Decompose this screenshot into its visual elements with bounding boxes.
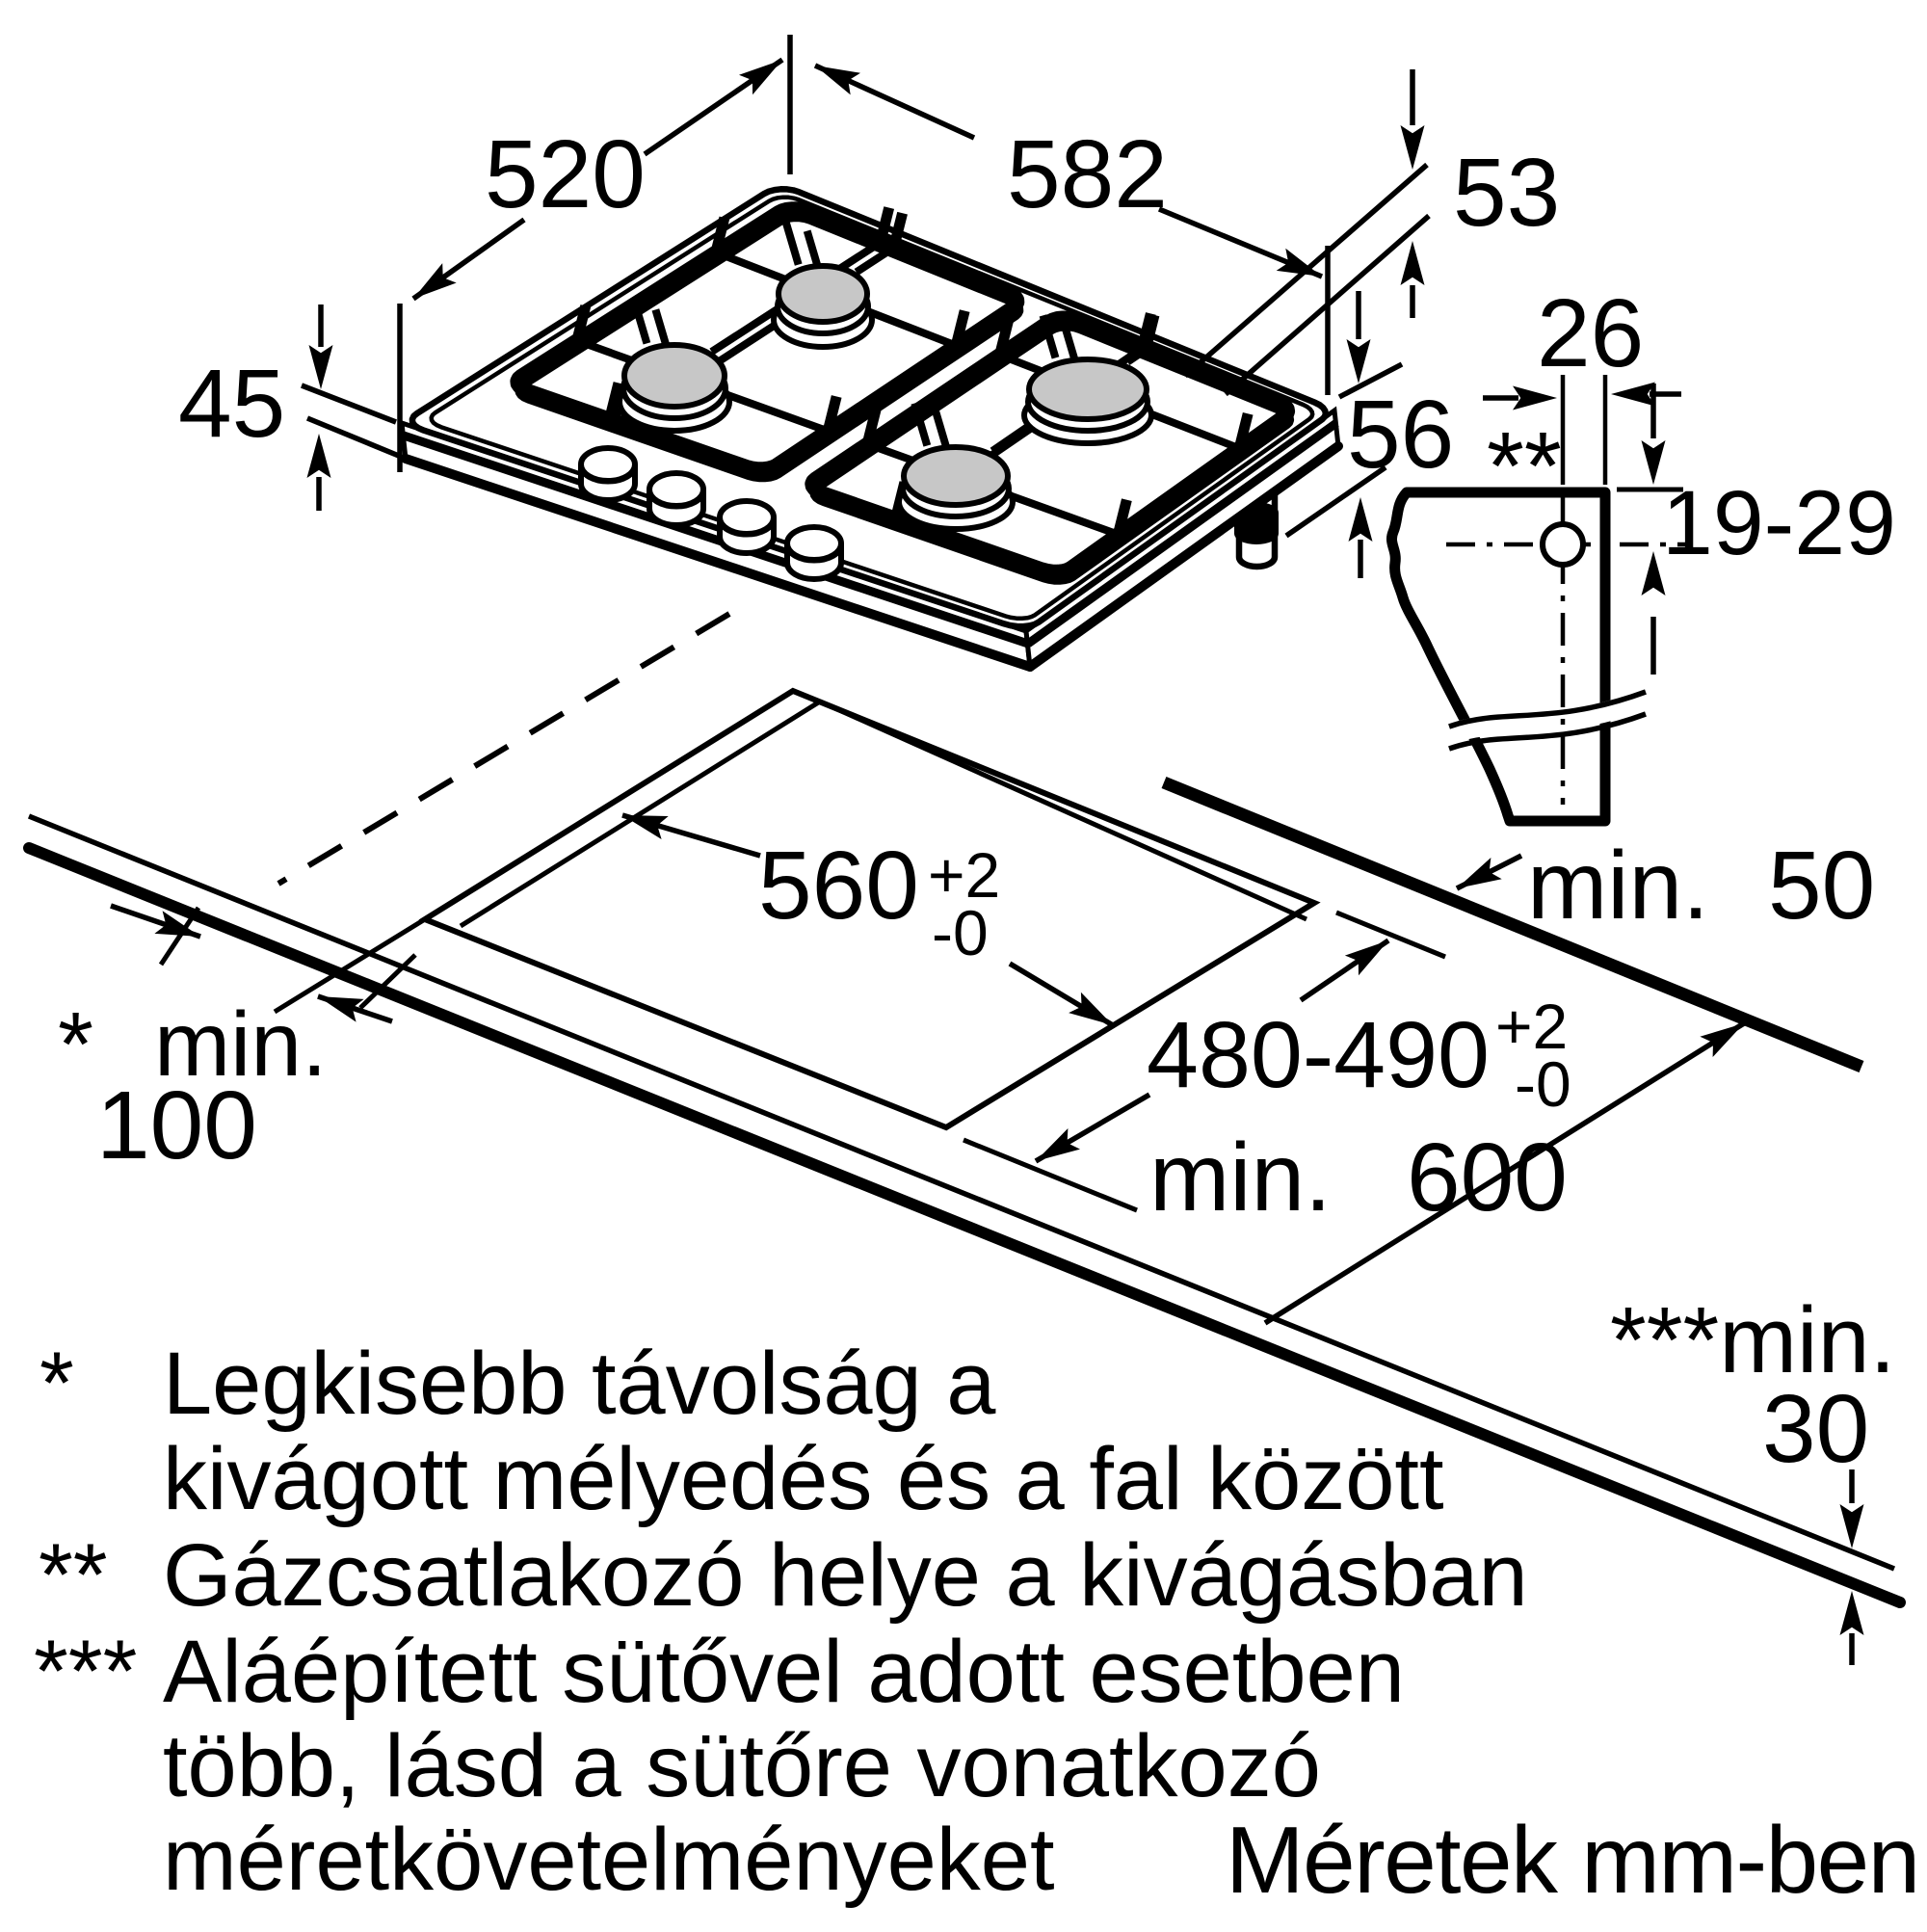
svg-text:méretkövetelményeket: méretkövetelményeket — [163, 1811, 1055, 1909]
svg-text:520: 520 — [485, 120, 646, 228]
svg-text:26: 26 — [1537, 279, 1644, 387]
svg-text:53: 53 — [1453, 139, 1560, 247]
svg-text:582: 582 — [1007, 120, 1168, 228]
svg-text:30: 30 — [1762, 1375, 1869, 1483]
svg-text:-0: -0 — [932, 897, 989, 968]
svg-text:45: 45 — [178, 350, 285, 458]
svg-text:kivágott mélyedés és a fal köz: kivágott mélyedés és a fal között — [163, 1430, 1444, 1528]
svg-text:480-490: 480-490 — [1147, 1002, 1490, 1107]
svg-text:**: ** — [39, 1526, 108, 1625]
svg-text:*: * — [58, 993, 93, 1096]
svg-text:560: 560 — [758, 832, 919, 940]
svg-text:-0: -0 — [1515, 1048, 1571, 1120]
svg-text:**: ** — [1487, 412, 1562, 520]
svg-text:Méretek mm-ben: Méretek mm-ben — [1226, 1807, 1919, 1913]
svg-text:Aláépített sütővel adott esetb: Aláépített sütővel adott esetben — [163, 1623, 1405, 1721]
svg-text:min.: min. — [1527, 832, 1709, 940]
svg-text:100: 100 — [96, 1072, 257, 1179]
svg-text:***: *** — [34, 1623, 137, 1721]
svg-text:19-29: 19-29 — [1662, 472, 1896, 574]
svg-text:min.: min. — [1149, 1124, 1332, 1231]
svg-text:56: 56 — [1347, 381, 1454, 489]
svg-text:Legkisebb távolság a: Legkisebb távolság a — [163, 1335, 996, 1433]
svg-text:*: * — [40, 1335, 74, 1433]
svg-text:600: 600 — [1407, 1124, 1568, 1231]
svg-text:50: 50 — [1768, 832, 1875, 940]
svg-text:Gázcsatlakozó helye a kivágásb: Gázcsatlakozó helye a kivágásban — [163, 1526, 1528, 1625]
svg-text:több, lásd a sütőre vonatkozó: több, lásd a sütőre vonatkozó — [163, 1717, 1321, 1815]
